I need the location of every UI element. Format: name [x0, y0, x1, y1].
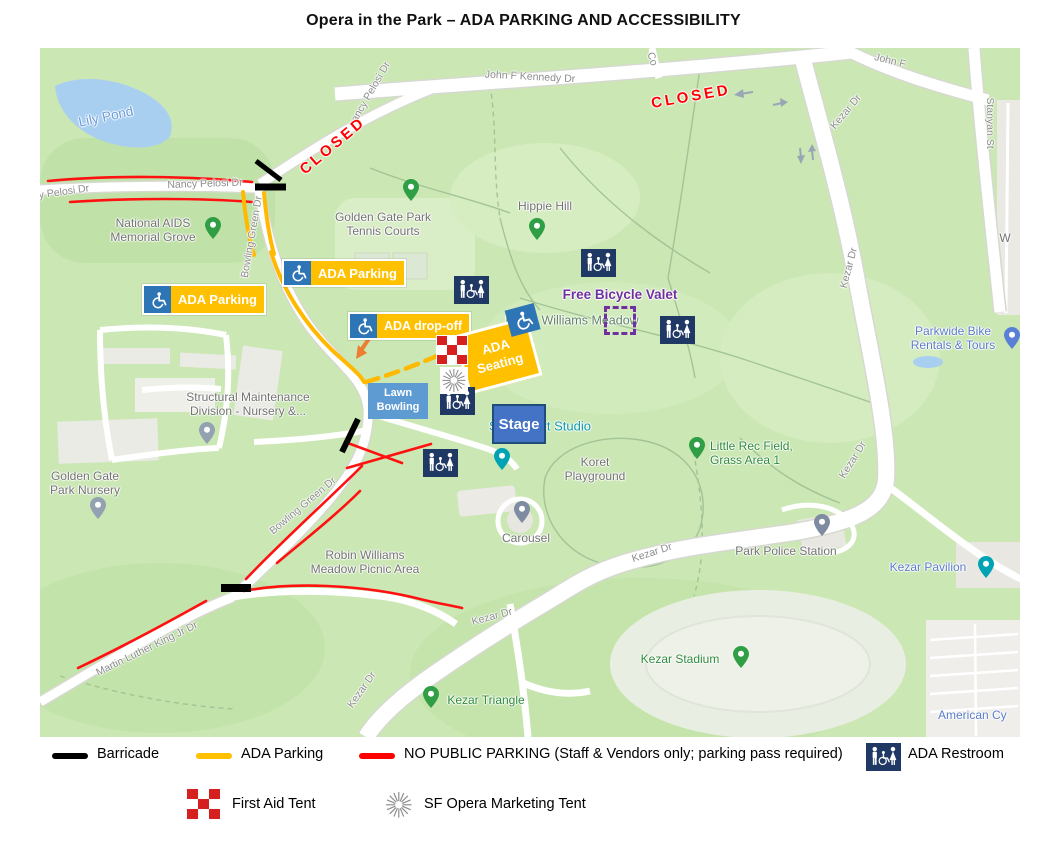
lawn-bowling-box: Lawn Bowling	[368, 383, 428, 419]
ada-restroom-icon	[454, 276, 489, 304]
legend-marketing-tent-label: SF Opera Marketing Tent	[424, 796, 586, 812]
place-parkwide-bike: Parkwide BikeRentals & Tours	[911, 324, 996, 352]
lawn-bowling-line: Lawn	[384, 387, 412, 401]
barricade-swatch	[52, 753, 88, 759]
road-label-stanyan: Stanyan St	[984, 97, 996, 148]
ada-seating-label: ADASeating	[471, 334, 525, 378]
place-line: Robin Williams	[325, 548, 404, 562]
page: { "title": "Opera in the Park – ADA PARK…	[0, 0, 1047, 846]
marketing-tent-icon	[384, 790, 414, 820]
ada-restroom-icon	[423, 449, 458, 477]
place-line: Parkwide Bike	[915, 324, 991, 338]
place-line: Little Rec Field,	[710, 439, 793, 453]
page-title: Opera in the Park – ADA PARKING AND ACCE…	[0, 12, 1047, 30]
marketing-tent-icon	[440, 367, 468, 394]
place-line: Park Nursery	[50, 483, 120, 497]
free-bicycle-valet-label: Free Bicycle Valet	[563, 287, 678, 303]
wheelchair-icon	[144, 286, 171, 313]
ada-restroom-icon	[581, 249, 616, 277]
place-line: Golden Gate Park	[335, 210, 431, 224]
place-line: National AIDS	[116, 216, 191, 230]
tennis-courts-pin	[403, 179, 419, 201]
place-hippie-hill: Hippie Hill	[518, 199, 572, 213]
park-nursery-pin	[90, 497, 106, 519]
place-kezar-triangle: Kezar Triangle	[447, 693, 524, 707]
place-line: Structural Maintenance	[186, 390, 309, 404]
sharon-art-studio-pin	[494, 448, 510, 470]
place-kezar-pavilion: Kezar Pavilion	[890, 560, 967, 574]
first-aid-tent-icon	[437, 336, 467, 364]
legend-ada-parking-label: ADA Parking	[241, 746, 323, 762]
place-american-cyclery: American Cy	[938, 708, 1007, 722]
first-aid-tent-icon	[187, 789, 220, 819]
bicycle-valet-zone-marker	[604, 306, 636, 335]
map-canvas: John F Kennedy Dr John F Co Stanyan St K…	[40, 48, 1020, 737]
bike-rentals-pin	[1004, 327, 1020, 349]
maintenance-division-pin	[199, 422, 215, 444]
place-line: Memorial Grove	[110, 230, 195, 244]
place-w-cutoff: W	[999, 231, 1010, 245]
lane-arrow-icons	[734, 89, 816, 164]
little-rec-field-tree-pin	[689, 437, 705, 459]
ada-parking-swatch	[196, 753, 232, 759]
place-police-station: Park Police Station	[735, 544, 836, 558]
place-tennis-courts: Golden Gate ParkTennis Courts	[335, 210, 431, 238]
legend-barricade-label: Barricade	[97, 746, 159, 762]
stage-box: Stage	[492, 404, 546, 444]
ada-restroom-icon	[660, 316, 695, 344]
legend-first-aid-label: First Aid Tent	[232, 796, 316, 812]
no-parking-swatch	[359, 753, 395, 759]
ada-parking-callout-1: ADA Parking	[142, 284, 266, 315]
ada-restroom-icon	[866, 743, 901, 771]
wheelchair-icon	[350, 314, 377, 338]
place-memorial-grove: National AIDSMemorial Grove	[110, 216, 195, 244]
ada-parking-callout-2: ADA Parking	[282, 259, 406, 287]
place-little-rec-field: Little Rec Field,Grass Area 1	[710, 439, 793, 467]
place-line: Tennis Courts	[346, 224, 419, 238]
place-line: Golden Gate	[51, 469, 119, 483]
place-line: Division - Nursery &...	[190, 404, 306, 418]
lawn-bowling-line: Bowling	[377, 401, 420, 415]
legend-ada-restroom-label: ADA Restroom	[908, 746, 1004, 762]
ada-parking-label: ADA Parking	[311, 261, 404, 285]
legend: Barricade ADA Parking NO PUBLIC PARKING …	[0, 737, 1047, 846]
place-kezar-stadium: Kezar Stadium	[641, 652, 720, 666]
wheelchair-icon	[284, 261, 311, 285]
place-line: Meadow Picnic Area	[311, 562, 420, 576]
place-koret-playground: KoretPlayground	[565, 455, 626, 483]
place-line: Grass Area 1	[710, 453, 780, 467]
place-line: Koret	[581, 455, 610, 469]
legend-no-parking-label: NO PUBLIC PARKING (Staff & Vendors only;…	[404, 746, 843, 762]
place-line: Playground	[565, 469, 626, 483]
road-label-nancy-pelosi: Nancy Pelosi Dr	[167, 177, 243, 192]
place-line: Rentals & Tours	[911, 338, 996, 352]
place-park-nursery: Golden GatePark Nursery	[50, 469, 120, 497]
place-carousel: Carousel	[502, 531, 550, 545]
ada-parking-label: ADA Parking	[171, 286, 264, 313]
place-picnic-area: Robin WilliamsMeadow Picnic Area	[311, 548, 420, 576]
place-structural-maintenance: Structural MaintenanceDivision - Nursery…	[186, 390, 309, 418]
